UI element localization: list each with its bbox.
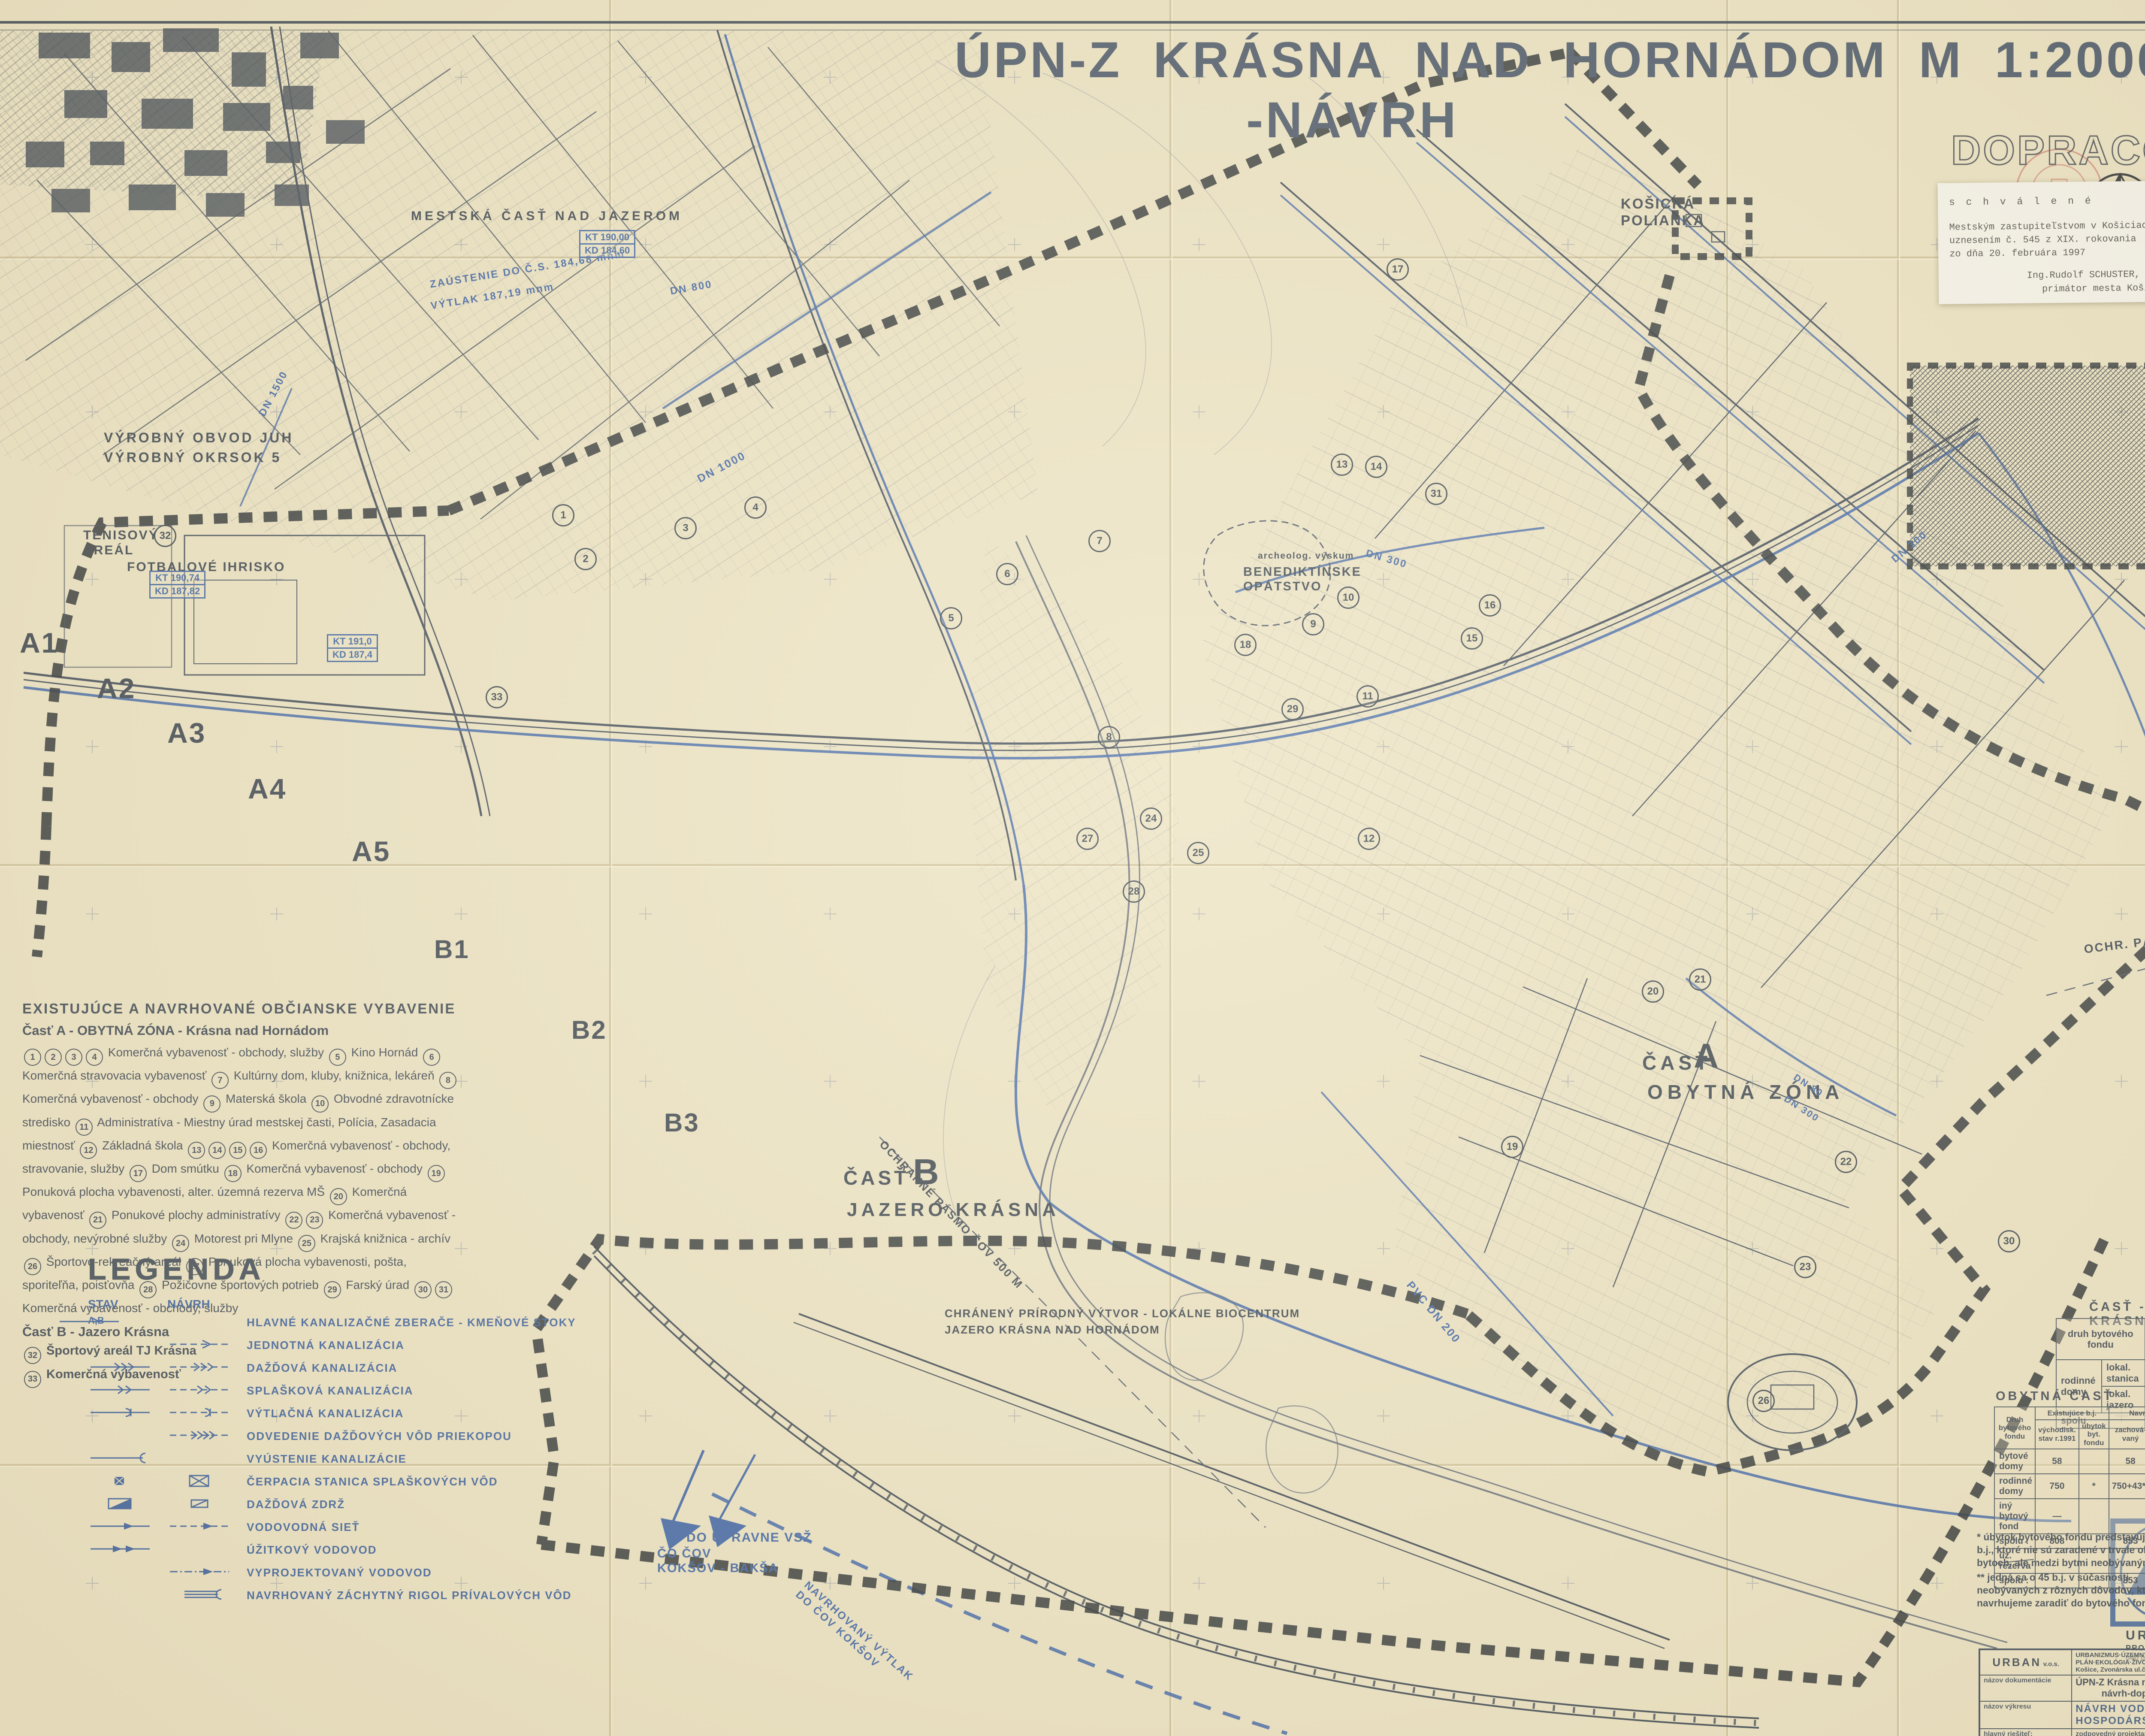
facility-marker-6: 6: [996, 563, 1018, 585]
legend-row: ČERPACIA STANICA SPLAŠKOVÝCH VÔD: [88, 1470, 757, 1493]
col-header: Druh bytového fondu: [1994, 1407, 2035, 1449]
facility-marker-4: 4: [744, 496, 767, 519]
elevation-kt: KT 191,0: [328, 635, 377, 647]
map-label: archeolog. výskum: [1258, 551, 1354, 562]
facility-number: 15: [229, 1142, 246, 1159]
legend-symbol-stav: [88, 1496, 167, 1513]
elevation-box: KT 190,00KD 184,60: [579, 230, 635, 258]
facility-number: 3: [65, 1049, 82, 1066]
legend-symbol-navrh: [167, 1496, 247, 1513]
facility-marker-26: 26: [1752, 1390, 1775, 1412]
table-footnote-2: ** jedná sa o 45 b.j. v súčasnosti neobý…: [1977, 1571, 2145, 1610]
facility-number: 23: [306, 1212, 323, 1229]
facility-marker-32: 32: [154, 525, 176, 547]
legend-symbol-navrh: [167, 1382, 247, 1399]
legend-col-stav: STAV: [88, 1297, 167, 1311]
legend-row: ODVEDENIE DAŽĎOVÝCH VÔD PRIEKOPOU: [88, 1425, 757, 1448]
elevation-kd: KD 187,82: [151, 584, 204, 597]
table-cell: bytové domy: [1994, 1449, 2035, 1474]
table-cell: hlavný riešiteľ: ing.arch.Hudec: [1979, 1729, 2072, 1736]
titleblock-drawing-label: názov výkresu: [1984, 1703, 2068, 1711]
legend-symbol-stav: [88, 1451, 167, 1467]
legend-symbol-stav: [88, 1587, 167, 1604]
facility-marker-21: 21: [1689, 968, 1711, 991]
elevation-kt: KT 190,74: [151, 572, 204, 584]
legend-label: NAVRHOVANÝ ZÁCHYTNÝ RIGOL PRÍVALOVÝCH VÔ…: [247, 1589, 757, 1602]
legend-symbol-stav: [88, 1564, 167, 1581]
legend-symbol: [88, 1382, 152, 1397]
map-label: A2: [97, 672, 136, 705]
facility-number: 19: [428, 1165, 445, 1182]
facility-marker-29: 29: [1281, 698, 1304, 720]
facility-number: 26: [24, 1258, 41, 1275]
stamp-signatory-title: primátor mesta Košice: [2042, 282, 2145, 294]
map-label: A1: [20, 626, 58, 660]
facility-number: 11: [76, 1119, 93, 1136]
table-cell: rodinné domy: [2056, 1360, 2102, 1413]
legend-symbol: [88, 1405, 152, 1420]
table-cell: *: [2079, 1474, 2109, 1499]
facility-marker-31: 31: [1425, 483, 1447, 505]
col-header: úbytok byt. fondu: [2079, 1420, 2109, 1449]
legend-symbol: [167, 1428, 232, 1443]
facility-marker-28: 28: [1123, 880, 1145, 903]
facility-marker-27: 27: [1076, 828, 1099, 850]
legend-symbol: [88, 1473, 152, 1488]
legend-label: VYÚSTENIE KANALIZÁCIE: [247, 1452, 757, 1466]
map-label: A: [1694, 1036, 1720, 1076]
facility-number: 12: [80, 1142, 97, 1159]
legend-label: DAŽĎOVÁ KANALIZÁCIA: [247, 1361, 757, 1375]
company-name: URBAN: [2126, 1628, 2145, 1642]
map-label: MESTSKÁ ČASŤ NAD JAZEROM: [411, 209, 683, 224]
elevation-kd: KD 184,60: [580, 243, 634, 257]
legend-symbol-navrh: [167, 1360, 247, 1376]
facility-marker-19: 19: [1501, 1136, 1523, 1158]
facility-number: 24: [172, 1235, 189, 1252]
table-cell: 750: [2035, 1474, 2079, 1499]
titleblock-logo-suffix: v.o.s.: [2043, 1660, 2059, 1668]
legend-row: ÚŽITKOVÝ VODOVOD: [88, 1539, 757, 1561]
legend-row: DAŽĎOVÁ KANALIZÁCIA: [88, 1357, 757, 1379]
facility-marker-10: 10: [1337, 587, 1360, 609]
facilities-part-a-heading: Časť A - OBYTNÁ ZÓNA - Krásna nad Hornád…: [22, 1023, 464, 1038]
table-cell: 58: [2035, 1449, 2079, 1474]
legend-symbol: [167, 1405, 232, 1420]
legend-label: JEDNOTNÁ KANALIZÁCIA: [247, 1339, 757, 1352]
table-cell: názov dokumentácie: [1979, 1675, 2072, 1701]
col-header: Navrhovaný stav b.j.: [2109, 1407, 2145, 1420]
legend-symbol-navrh: [167, 1587, 247, 1604]
facility-marker-5: 5: [940, 607, 962, 629]
facility-marker-11: 11: [1356, 685, 1379, 708]
legend-symbol: [167, 1473, 232, 1488]
facility-marker-12: 12: [1358, 828, 1380, 850]
table-obytna-title: OBYTNÁ ČASŤ: [1996, 1389, 2114, 1403]
col-header: východisk. stav r.1991: [2035, 1420, 2079, 1449]
facility-number: 1: [24, 1049, 41, 1066]
facility-marker-16: 16: [1479, 594, 1501, 617]
legend-symbol: [88, 1542, 152, 1556]
facility-marker-20: 20: [1642, 980, 1664, 1003]
legend-row: VYÚSTENIE KANALIZÁCIE: [88, 1448, 757, 1470]
table-cell: 58: [2109, 1449, 2145, 1474]
legend-label: VÝTLAČNÁ KANALIZÁCIA: [247, 1407, 757, 1420]
facility-number: 7: [211, 1072, 229, 1089]
map-label: A5: [352, 835, 390, 868]
facility-marker-22: 22: [1835, 1151, 1857, 1173]
table-cell: [2109, 1499, 2145, 1534]
legend-symbol: [167, 1564, 232, 1579]
legend-symbol: [167, 1337, 232, 1352]
table-cell: lokal. stanica: [2102, 1360, 2145, 1386]
legend-symbol-navrh: [167, 1337, 247, 1354]
legend-label: VODOVODNÁ SIEŤ: [247, 1521, 757, 1534]
legend: LEGENDA STAV NÁVRH A,BHLAVNÉ KANALIZAČNÉ…: [88, 1252, 757, 1607]
map-label: CHRÁNENÝ PRÍRODNÝ VÝTVOR - LOKÁLNE BIOCE…: [945, 1307, 1300, 1320]
approval-stamp: s c h v á l e n é Mestským zastupiteľstv…: [1938, 181, 2145, 304]
legend-symbol: [88, 1451, 152, 1465]
table-cell: iný bytový fond: [1994, 1499, 2035, 1534]
map-label: VÝROBNÝ OKRSOK 5: [104, 450, 281, 466]
facility-number: 6: [423, 1049, 440, 1066]
map-label: JAZERO KRÁSNA NAD HORNÁDOM: [945, 1323, 1160, 1337]
legend-symbol-navrh: [167, 1564, 247, 1581]
legend-row: A,BHLAVNÉ KANALIZAČNÉ ZBERAČE - KMEŇOVÉ …: [88, 1311, 757, 1334]
stamp-approved-text: s c h v á l e n é: [1949, 195, 2094, 208]
facility-number: 2: [45, 1049, 62, 1066]
facility-number: 18: [224, 1165, 242, 1182]
elevation-kt: KT 190,00: [580, 231, 634, 243]
titleblock-drawing-name: NÁVRH VODNÉHO HOSPODÁRSTVA: [2076, 1703, 2145, 1727]
map-label: VÝROBNÝ OBVOD JUH: [104, 430, 293, 446]
legend-symbol: [167, 1519, 232, 1533]
legend-symbol-navrh: [167, 1314, 247, 1331]
stamp-signatory: Ing.Rudolf SCHUSTER, CSc.: [2027, 269, 2145, 281]
legend-symbol: [167, 1382, 232, 1397]
table-cell: [2079, 1449, 2109, 1474]
facility-marker-9: 9: [1302, 613, 1324, 635]
facility-number: 9: [203, 1095, 221, 1113]
facility-number: 22: [285, 1212, 302, 1229]
legend-symbol-stav: [88, 1360, 167, 1376]
legend-symbol: [167, 1360, 232, 1374]
map-label: A4: [248, 772, 287, 806]
titleblock-maker-line1: URBANIZMUS·ÚZEMNÝ PLÁN·EKOLÓGIA·ŽIVOTNÉ …: [2076, 1651, 2145, 1666]
legend-symbol-navrh: [167, 1451, 247, 1467]
table-cell: [2079, 1499, 2109, 1534]
titleblock-logo-name: URBAN: [1992, 1656, 2041, 1669]
legend-rows: A,BHLAVNÉ KANALIZAČNÉ ZBERAČE - KMEŇOVÉ …: [88, 1311, 757, 1607]
legend-row: VYPROJEKTOVANÝ VODOVOD: [88, 1561, 757, 1584]
facility-marker-18: 18: [1234, 634, 1257, 656]
facility-number: 16: [250, 1142, 267, 1159]
legend-prefix: A,B: [88, 1315, 104, 1326]
facility-marker-24: 24: [1140, 808, 1162, 830]
map-sheet: ÚPN-Z KRÁSNA NAD HORNÁDOM M 1:2000 -NÁVR…: [0, 0, 2145, 1736]
legend-title: LEGENDA: [88, 1252, 757, 1286]
facility-marker-13: 13: [1331, 454, 1353, 476]
facility-marker-30: 30: [1998, 1230, 2020, 1252]
legend-symbol: [88, 1360, 152, 1374]
facility-number: 8: [439, 1072, 456, 1089]
title-block: URBAN v.o.s. URBANIZMUS·ÚZEMNÝ PLÁN·EKOL…: [1979, 1648, 2145, 1736]
legend-label: ODVEDENIE DAŽĎOVÝCH VÔD PRIEKOPOU: [247, 1430, 757, 1443]
titleblock-doc-line1: ÚPN-Z Krásna nad Hornádom: [2076, 1677, 2145, 1688]
legend-row: DAŽĎOVÁ ZDRŽ: [88, 1493, 757, 1516]
legend-row: JEDNOTNÁ KANALIZÁCIA: [88, 1334, 757, 1357]
titleblock-resp-label: zodpovedný projektant:: [2076, 1730, 2145, 1736]
facility-marker-1: 1: [552, 504, 574, 526]
table-cell: 750+43**: [2109, 1474, 2145, 1499]
legend-symbol-stav: [88, 1382, 167, 1399]
table-cell: URBAN v.o.s.: [1979, 1649, 2072, 1675]
facility-marker-17: 17: [1387, 258, 1409, 281]
table-cell: zodpovedný projektant: ing.arch. Hudec I…: [2072, 1729, 2145, 1736]
facility-number: 25: [298, 1235, 315, 1252]
facility-number: 32: [24, 1347, 41, 1364]
legend-symbol-stav: [88, 1519, 167, 1536]
facility-marker-2: 2: [574, 548, 597, 570]
page-subtitle: -NÁVRH: [1246, 91, 1459, 149]
elevation-box: KT 191,0KD 187,4: [327, 634, 378, 662]
facility-marker-3: 3: [674, 517, 697, 539]
table-cell: rodinné domy: [1994, 1474, 2035, 1499]
legend-col-navrh: NÁVRH: [167, 1297, 247, 1311]
titleblock-doc-label: názov dokumentácie: [1984, 1677, 2068, 1685]
facility-marker-15: 15: [1461, 627, 1483, 650]
facility-number: 17: [130, 1165, 147, 1182]
facilities-heading: EXISTUJÚCE A NAVRHOVANÉ OBČIANSKE VYBAVE…: [22, 1001, 464, 1017]
table-cell: názov výkresu: [1979, 1701, 2072, 1729]
legend-symbol-stav: A,B: [88, 1314, 167, 1331]
legend-row: SPLAŠKOVÁ KANALIZÁCIA: [88, 1379, 757, 1402]
facility-marker-8: 8: [1098, 726, 1120, 748]
legend-symbol-navrh: [167, 1473, 247, 1490]
titleblock-lead-label: hlavný riešiteľ:: [1984, 1730, 2068, 1736]
elevation-kd: KD 187,4: [328, 647, 377, 661]
legend-row: VÝTLAČNÁ KANALIZÁCIA: [88, 1402, 757, 1425]
map-label: DO ÚPRAVNE VSŽ: [686, 1530, 812, 1545]
facility-marker-7: 7: [1088, 530, 1111, 552]
legend-label: DAŽĎOVÁ ZDRŽ: [247, 1498, 757, 1511]
legend-symbol-stav: [88, 1473, 167, 1490]
map-label: TENISOVÝ AREÁL: [83, 528, 159, 558]
revision-title: DOPRACOVANIE: [1951, 127, 2145, 174]
reserved-area-hatched: [1910, 366, 2145, 566]
facility-number: 21: [89, 1212, 106, 1229]
facility-marker-25: 25: [1187, 842, 1209, 864]
stamp-resolution-text: Mestským zastupiteľstvom v Košiciach uzn…: [1949, 219, 2145, 261]
facility-number: 5: [329, 1049, 346, 1066]
facility-number: 10: [311, 1095, 329, 1113]
col-header: zachová- vaný: [2109, 1420, 2145, 1449]
legend-symbol-navrh: [167, 1542, 247, 1558]
facility-marker-33: 33: [486, 686, 508, 708]
facility-number: 33: [24, 1371, 41, 1388]
map-label: A3: [167, 717, 206, 750]
legend-symbol: [167, 1496, 232, 1511]
legend-symbol-navrh: [167, 1405, 247, 1422]
facility-number: 4: [86, 1049, 103, 1066]
elevation-box: KT 190,74KD 187,82: [149, 571, 205, 599]
legend-symbol-stav: [88, 1428, 167, 1445]
facility-marker-23: 23: [1794, 1256, 1816, 1278]
map-label: B3: [664, 1108, 700, 1138]
legend-label: HLAVNÉ KANALIZAČNÉ ZBERAČE - KMEŇOVÉ STO…: [247, 1316, 757, 1329]
legend-symbol-stav: [88, 1405, 167, 1422]
page-title: ÚPN-Z KRÁSNA NAD HORNÁDOM M 1:2000: [955, 31, 2145, 89]
col-header: druh bytového fondu: [2056, 1319, 2145, 1360]
legend-label: ČERPACIA STANICA SPLAŠKOVÝCH VÔD: [247, 1475, 757, 1488]
table-cell: ÚPN-Z Krásna nad Hornádom návrh-dopracov…: [2072, 1675, 2145, 1701]
map-label: ČO ČOV KOKŠOV - BAKŠA: [657, 1546, 779, 1576]
facility-marker-14: 14: [1365, 456, 1387, 478]
titleblock-maker-line2: Košice, Zvonárska ul.č.23: [2076, 1666, 2145, 1673]
facility-number: 20: [330, 1188, 347, 1205]
legend-symbol-navrh: [167, 1428, 247, 1445]
legend-symbol-stav: [88, 1542, 167, 1558]
map-label: B1: [434, 935, 470, 965]
legend-label: SPLAŠKOVÁ KANALIZÁCIA: [247, 1384, 757, 1397]
col-header: Existujúce b.j.: [2035, 1407, 2109, 1420]
table-footnote-1: * úbytok bytového fondu predstavuje 24 b…: [1977, 1531, 2145, 1570]
legend-row: NAVRHOVANÝ ZÁCHYTNÝ RIGOL PRÍVALOVÝCH VÔ…: [88, 1584, 757, 1607]
table-cell: NÁVRH VODNÉHO HOSPODÁRSTVA: [2072, 1701, 2145, 1729]
legend-symbol: [88, 1496, 152, 1511]
legend-symbol-stav: [88, 1337, 167, 1354]
titleblock-doc-line2: návrh-dopracovanie: [2076, 1688, 2145, 1699]
legend-symbol-navrh: [167, 1519, 247, 1536]
table-cell: URBANIZMUS·ÚZEMNÝ PLÁN·EKOLÓGIA·ŽIVOTNÉ …: [2072, 1649, 2145, 1675]
facility-number: 14: [208, 1142, 226, 1159]
map-label: KOŠICKÁ POLIANKA: [1621, 196, 1705, 229]
legend-symbol: [167, 1587, 232, 1602]
map-label: B2: [571, 1015, 607, 1046]
facility-number: 13: [188, 1142, 205, 1159]
legend-symbol: [88, 1519, 152, 1533]
legend-row: VODOVODNÁ SIEŤ: [88, 1516, 757, 1539]
table-cell: —: [2035, 1499, 2079, 1534]
